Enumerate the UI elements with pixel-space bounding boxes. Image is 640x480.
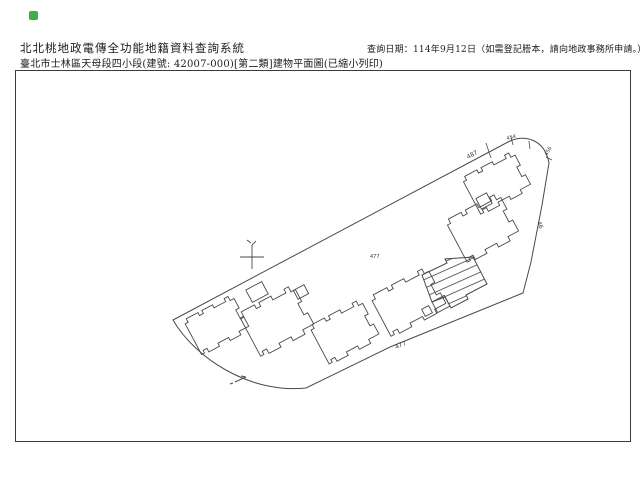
north-cross-icon: [240, 240, 264, 269]
page: { "header": { "system_title": "北北桃地政電傳全功…: [0, 0, 640, 480]
map-label: 487: [466, 149, 480, 161]
building-footprints: [183, 151, 532, 365]
map-label: 477: [370, 254, 380, 260]
arrow-mark: [230, 376, 246, 384]
hatched-building: [422, 257, 487, 308]
map-label: 46: [535, 220, 544, 230]
map-label: 454: [506, 134, 517, 142]
map-label: 477: [394, 340, 407, 351]
building-outline: [445, 193, 521, 264]
parcel-boundary: [173, 138, 549, 388]
building-outline: [309, 299, 381, 365]
map-label: 456: [544, 146, 554, 157]
building-plan-drawing: 48745445646477477: [0, 0, 640, 480]
